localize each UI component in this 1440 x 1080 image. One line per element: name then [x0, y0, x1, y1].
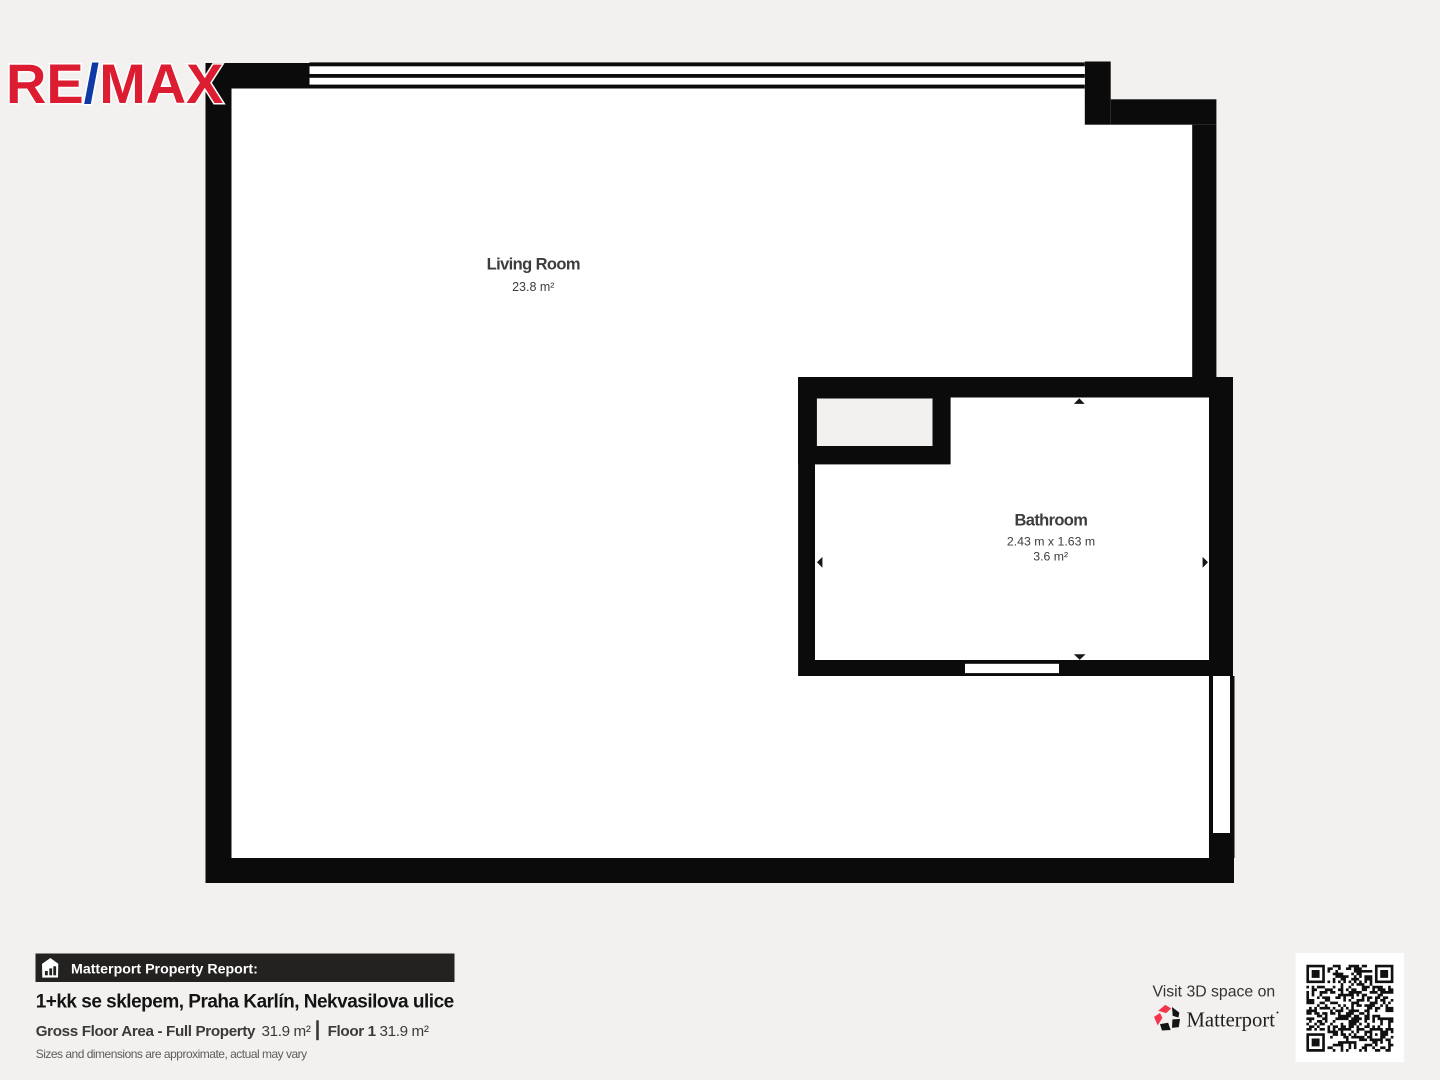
svg-text:Floor 1: Floor 1	[328, 1023, 377, 1040]
svg-text:3.6 m²: 3.6 m²	[1033, 550, 1068, 564]
svg-text:23.8 m²: 23.8 m²	[512, 280, 554, 294]
svg-text:Gross Floor Area - Full Proper: Gross Floor Area - Full Property	[36, 1023, 256, 1040]
svg-text:Living Room: Living Room	[487, 256, 580, 274]
svg-text:Visit 3D space on: Visit 3D space on	[1153, 984, 1276, 1001]
svg-text:Bathroom: Bathroom	[1015, 512, 1088, 530]
svg-text:RE/MAX: RE/MAX	[6, 52, 223, 115]
svg-text:31.9 m²: 31.9 m²	[380, 1023, 429, 1040]
svg-text:Sizes and dimensions are appro: Sizes and dimensions are approximate, ac…	[36, 1047, 307, 1061]
svg-text:Matterport: Matterport	[1187, 1010, 1276, 1032]
svg-text:1+kk se sklepem, Praha Karlín,: 1+kk se sklepem, Praha Karlín, Nekvasilo…	[36, 992, 454, 1013]
svg-text:2.43 m x 1.63 m: 2.43 m x 1.63 m	[1007, 535, 1095, 549]
svg-text:31.9 m²: 31.9 m²	[262, 1023, 311, 1040]
svg-text:Matterport Property Report:: Matterport Property Report:	[71, 962, 258, 978]
